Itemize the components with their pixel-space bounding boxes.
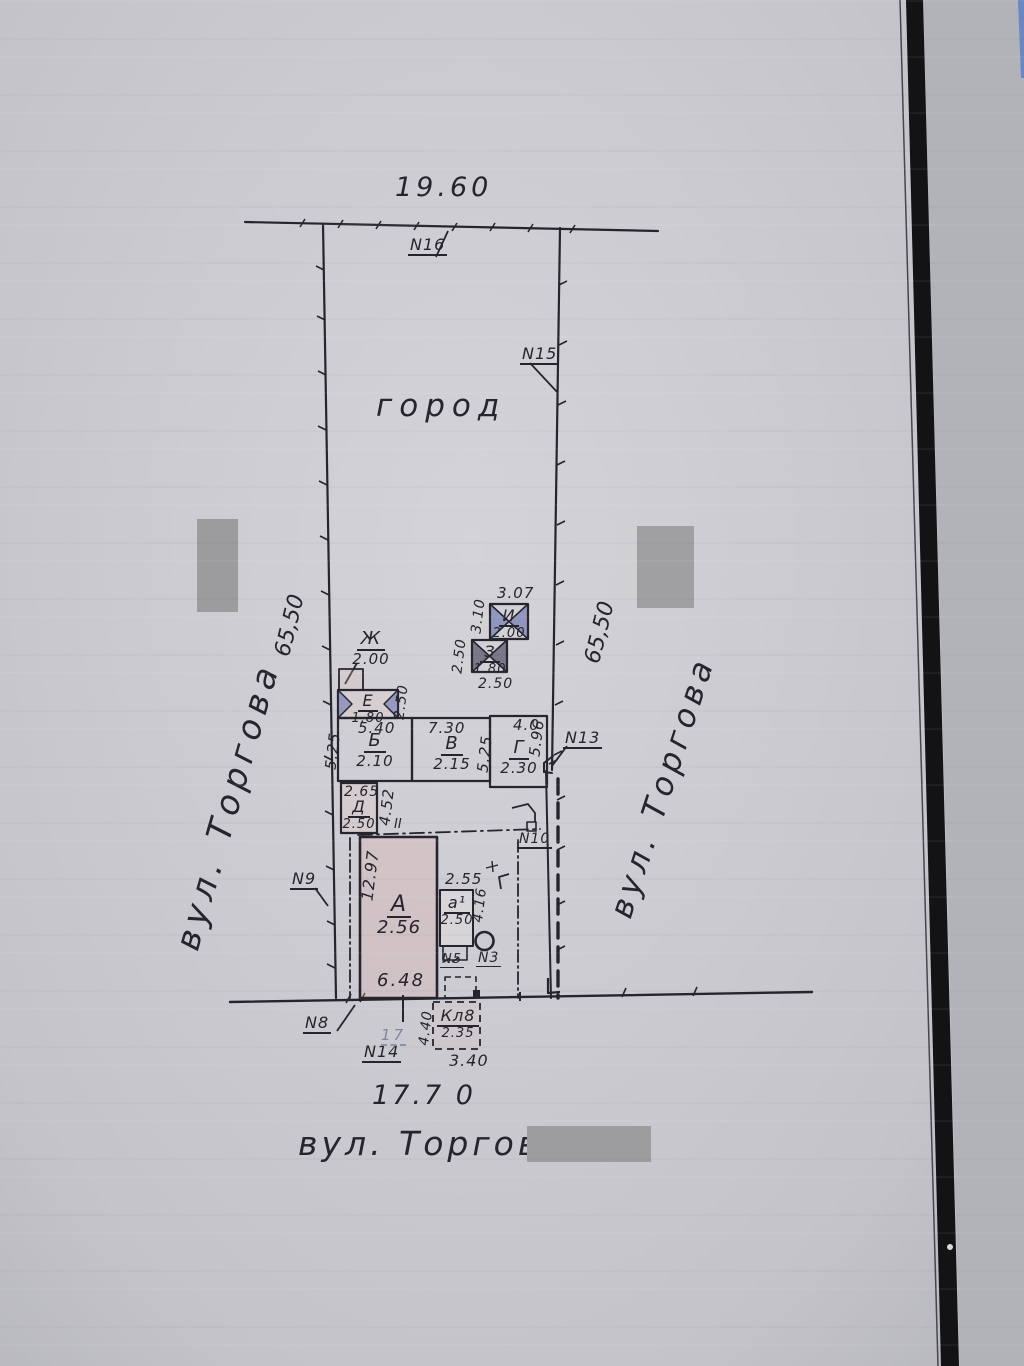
survey-mark-15: N15 [520, 344, 559, 365]
building-letter-V: В [441, 735, 462, 756]
building-value-V: 2.15 [432, 756, 472, 773]
dim-D-top: 2.65 [344, 784, 379, 800]
building-value-A: 2.56 [373, 918, 425, 939]
dim-I-top: 3.07 [497, 584, 534, 602]
dim-A-bottom: 6.48 [377, 970, 425, 991]
building-value-G: 2.30 [498, 760, 540, 777]
redaction-box-bottom [527, 1126, 651, 1162]
survey-mark-16: N16 [408, 235, 447, 256]
building-label-Zh: Ж 2.00 [349, 629, 393, 668]
top-dimension: 19.60 [395, 172, 492, 203]
building-value-Zh: 2.00 [349, 651, 393, 668]
scanned-site-plan: 19.60 17.7 0 город вул. Торгова 65,50 ву… [0, 0, 1024, 1366]
survey-mark-8: N8 [303, 1013, 331, 1034]
fence-section-mark: II [394, 817, 402, 832]
building-value-B: 2.10 [355, 753, 395, 770]
building-label-I: И 2.00 [491, 606, 527, 642]
dim-Z-bottom: 2.50 [478, 676, 513, 692]
survey-mark-9: N9 [290, 869, 318, 890]
dim-V-top: 7.30 [428, 719, 465, 737]
building-label-A: А 2.56 [373, 893, 425, 939]
bottom-street-name: вул. Торгова [298, 1124, 566, 1163]
bottom-dimension: 17.7 0 [372, 1080, 476, 1111]
survey-mark-5: N5 [440, 952, 464, 968]
building-label-V: В 2.15 [432, 734, 472, 773]
building-letter-D: Д [348, 799, 370, 818]
dim-B-top: 5.40 [358, 719, 395, 737]
building-label-Z: З 1.80 [473, 642, 507, 678]
building-letter-Z: З [480, 644, 499, 663]
fence-line-II [358, 829, 540, 835]
building-letter-E: Е [358, 693, 377, 712]
building-letter-Zh: Ж [357, 630, 385, 651]
building-letter-a1: а¹ [444, 895, 470, 914]
building-letter-Kl: Кл8 [437, 1008, 480, 1027]
building-label-Kl: Кл8 2.35 [436, 1006, 480, 1042]
building-value-D: 2.50 [340, 818, 378, 833]
building-value-Kl: 2.35 [436, 1027, 480, 1042]
scan-edge-artifacts [900, 0, 1024, 1366]
redaction-box-left [197, 519, 238, 612]
survey-mark-10: N10 [517, 831, 552, 849]
building-label-D: Д 2.50 [340, 797, 378, 833]
redaction-box-right [637, 526, 694, 608]
building-letter-I: И [499, 608, 520, 627]
survey-mark-13: N13 [563, 728, 602, 749]
dim-Kl-bottom: 3.40 [449, 1051, 489, 1070]
building-value-I: 2.00 [491, 627, 527, 642]
building-letter-A: А [387, 893, 411, 918]
survey-mark-3: N3 [476, 950, 501, 967]
garden-label: город [376, 388, 506, 424]
faint-house-number: 17 [381, 1026, 406, 1046]
